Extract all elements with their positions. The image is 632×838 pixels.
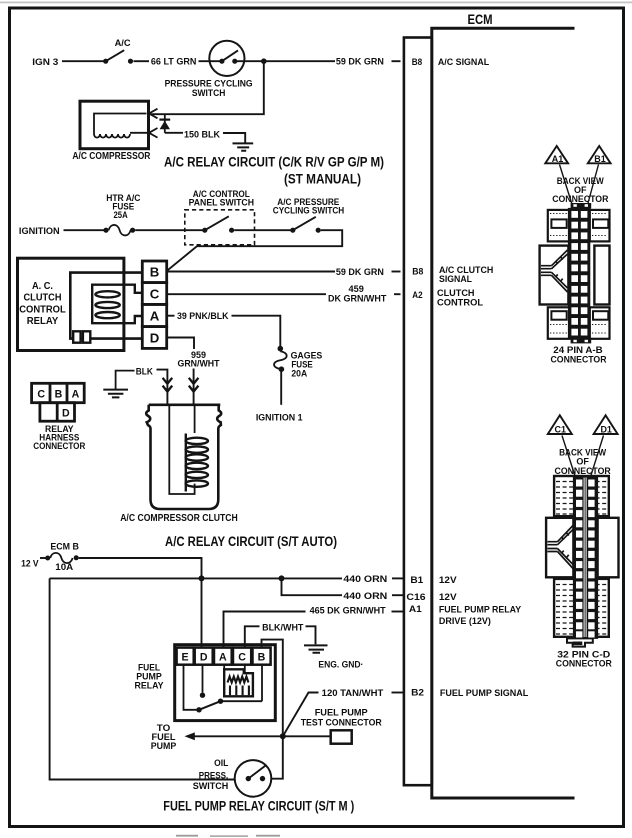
svg-text:ECM: ECM bbox=[467, 12, 492, 27]
svg-text:SIGNAL: SIGNAL bbox=[439, 274, 472, 284]
svg-text:PRESS.: PRESS. bbox=[199, 769, 229, 780]
svg-text:IGNITION: IGNITION bbox=[19, 225, 60, 236]
svg-text:120 TAN/WHT: 120 TAN/WHT bbox=[322, 687, 384, 698]
svg-text:CONTROL: CONTROL bbox=[19, 305, 66, 316]
svg-text:A1: A1 bbox=[552, 154, 564, 164]
svg-text:B8: B8 bbox=[412, 57, 422, 67]
svg-text:CONNECTOR: CONNECTOR bbox=[552, 194, 609, 204]
svg-text:12V: 12V bbox=[439, 575, 458, 585]
svg-text:(ST MANUAL): (ST MANUAL) bbox=[284, 172, 361, 188]
svg-text:66 LT GRN: 66 LT GRN bbox=[151, 56, 197, 67]
svg-text:440 ORN: 440 ORN bbox=[343, 590, 387, 601]
svg-text:A. C.: A. C. bbox=[32, 281, 53, 292]
svg-text:12 V: 12 V bbox=[21, 558, 39, 569]
svg-text:A: A bbox=[150, 308, 160, 323]
svg-text:A: A bbox=[72, 388, 80, 400]
svg-text:CONTROL: CONTROL bbox=[437, 297, 483, 307]
svg-text:FUEL PUMP RELAY CIRCUIT (S/T M: FUEL PUMP RELAY CIRCUIT (S/T M ) bbox=[163, 799, 354, 815]
svg-text:RELAY: RELAY bbox=[27, 316, 59, 327]
svg-text:A: A bbox=[219, 652, 227, 664]
svg-text:B: B bbox=[55, 388, 63, 400]
svg-text:OIL: OIL bbox=[214, 757, 228, 768]
svg-text:B1: B1 bbox=[594, 154, 606, 164]
svg-text:BLK: BLK bbox=[136, 366, 153, 377]
svg-text:A/C: A/C bbox=[115, 37, 131, 48]
svg-text:D: D bbox=[150, 330, 160, 345]
svg-text:GRN/WHT: GRN/WHT bbox=[178, 357, 220, 368]
svg-text:D1: D1 bbox=[600, 425, 612, 435]
svg-text:BLK/WHT: BLK/WHT bbox=[262, 622, 304, 633]
svg-text:ECM B: ECM B bbox=[50, 541, 79, 551]
svg-text:A/C COMPRESSOR: A/C COMPRESSOR bbox=[72, 151, 150, 162]
svg-text:SWITCH: SWITCH bbox=[192, 87, 226, 98]
svg-text:150 BLK: 150 BLK bbox=[184, 128, 220, 139]
svg-text:B1: B1 bbox=[410, 575, 423, 585]
svg-text:A1: A1 bbox=[409, 604, 422, 614]
svg-text:440 ORN: 440 ORN bbox=[343, 573, 387, 584]
svg-text:CONNECTOR: CONNECTOR bbox=[555, 466, 612, 476]
svg-text:A/C SIGNAL: A/C SIGNAL bbox=[438, 57, 490, 67]
svg-text:CONNECTOR: CONNECTOR bbox=[556, 659, 612, 669]
svg-text:D: D bbox=[200, 652, 208, 664]
svg-text:TEST CONNECTOR: TEST CONNECTOR bbox=[301, 716, 382, 727]
svg-text:DK GRN/WHT: DK GRN/WHT bbox=[328, 292, 387, 303]
svg-text:10A: 10A bbox=[55, 562, 73, 572]
svg-text:B8: B8 bbox=[412, 266, 423, 276]
svg-text:CLUTCH: CLUTCH bbox=[24, 293, 62, 304]
svg-text:PUMP: PUMP bbox=[151, 740, 177, 751]
svg-text:CONNECTOR: CONNECTOR bbox=[33, 441, 85, 451]
svg-text:C: C bbox=[238, 652, 246, 664]
svg-text:RELAY: RELAY bbox=[135, 680, 164, 690]
svg-text:B: B bbox=[258, 652, 266, 664]
svg-text:D: D bbox=[62, 408, 70, 420]
svg-text:12V: 12V bbox=[439, 592, 458, 602]
svg-text:CLUTCH: CLUTCH bbox=[437, 288, 475, 298]
svg-text:IGN 3: IGN 3 bbox=[32, 56, 58, 67]
svg-text:59 DK GRN: 59 DK GRN bbox=[336, 266, 384, 277]
svg-text:A2: A2 bbox=[412, 290, 422, 300]
svg-text:C1: C1 bbox=[555, 425, 567, 435]
svg-text:PANEL SWITCH: PANEL SWITCH bbox=[189, 198, 255, 208]
svg-text:C: C bbox=[150, 286, 160, 301]
svg-text:59 DK GRN: 59 DK GRN bbox=[336, 56, 384, 67]
svg-text:A/C RELAY CIRCUIT (S/T AUTO): A/C RELAY CIRCUIT (S/T AUTO) bbox=[165, 534, 337, 550]
svg-text:A/C RELAY CIRCUIT (C/K R/V G: A/C RELAY CIRCUIT (C/K R/V GP G/P M) bbox=[164, 154, 384, 170]
svg-text:DRIVE (12V): DRIVE (12V) bbox=[439, 616, 491, 626]
svg-text:25A: 25A bbox=[114, 210, 129, 220]
svg-text:B2: B2 bbox=[411, 687, 424, 697]
svg-text:465 DK GRN/WHT: 465 DK GRN/WHT bbox=[310, 604, 386, 615]
svg-text:B: B bbox=[150, 265, 160, 280]
svg-text:IGNITION 1: IGNITION 1 bbox=[256, 412, 303, 423]
svg-text:20A: 20A bbox=[291, 368, 307, 379]
svg-text:FUEL PUMP SIGNAL: FUEL PUMP SIGNAL bbox=[440, 688, 529, 698]
svg-text:CYCLING SWITCH: CYCLING SWITCH bbox=[273, 206, 345, 216]
svg-text:E: E bbox=[182, 652, 189, 664]
svg-text:CONNECTOR: CONNECTOR bbox=[551, 354, 607, 364]
svg-text:ENG. GND·: ENG. GND· bbox=[318, 658, 363, 669]
svg-text:C: C bbox=[37, 388, 45, 400]
svg-text:A/C COMPRESSOR CLUTCH: A/C COMPRESSOR CLUTCH bbox=[120, 513, 238, 524]
svg-text:39 PNK/BLK: 39 PNK/BLK bbox=[177, 310, 229, 321]
svg-text:C16: C16 bbox=[406, 592, 425, 602]
svg-text:SWITCH: SWITCH bbox=[193, 780, 229, 791]
svg-text:FUEL PUMP RELAY: FUEL PUMP RELAY bbox=[439, 605, 521, 615]
